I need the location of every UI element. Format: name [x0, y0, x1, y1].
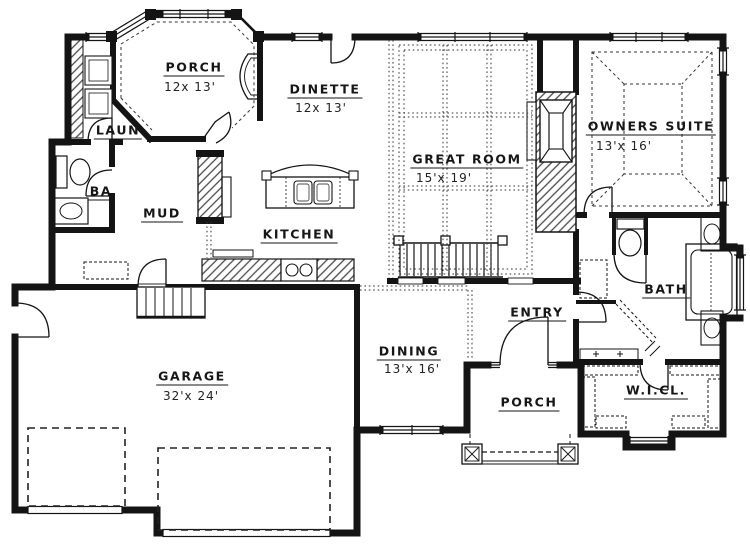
dims-dinette: 12x 13'	[295, 101, 347, 115]
label-laundry: LAUN	[94, 123, 142, 140]
garage-doors	[28, 507, 330, 537]
porch-bottom-structure	[462, 434, 578, 464]
floor-plan-page: PORCH 12x 13' DINETTE 12x 13' LAUN BA MU…	[0, 0, 750, 544]
label-dinette: DINETTE	[287, 82, 362, 99]
label-great-room: GREAT ROOM	[410, 152, 523, 169]
dims-dining: 13'x 16'	[384, 362, 440, 376]
label-mud: MUD	[141, 206, 183, 223]
label-garage: GARAGE	[156, 369, 228, 386]
garage-stalls	[28, 428, 330, 530]
dims-owners-suite: 13'x 16'	[596, 139, 652, 153]
ceiling-lines	[207, 40, 532, 360]
interior-partitions	[578, 215, 646, 302]
label-bath: BATH	[642, 282, 690, 299]
mud-bench	[84, 262, 128, 279]
shower	[616, 300, 660, 356]
fireplace	[527, 92, 576, 232]
label-wic: W.I.CL.	[624, 383, 688, 400]
label-entry: ENTRY	[508, 305, 566, 322]
exterior-walls	[15, 14, 740, 533]
floor-plan-drawing	[0, 0, 750, 544]
dims-great-room: 15'x 19'	[416, 171, 472, 185]
dims-porch-top: 12x 13'	[164, 80, 216, 94]
half-bath-fixtures	[54, 156, 90, 224]
label-porch-top: PORCH	[163, 60, 224, 77]
label-kitchen: KITCHEN	[261, 227, 338, 244]
label-owners-suite: OWNERS SUITE	[586, 119, 716, 136]
label-dining: DINING	[377, 344, 441, 361]
stair-railing	[394, 236, 507, 277]
label-porch-bottom: PORCH	[498, 395, 559, 412]
label-half-bath: BA	[88, 184, 114, 201]
dims-garage: 32'x 24'	[163, 389, 219, 403]
kitchen-fixtures	[196, 150, 358, 281]
basement-stairs	[137, 287, 205, 318]
